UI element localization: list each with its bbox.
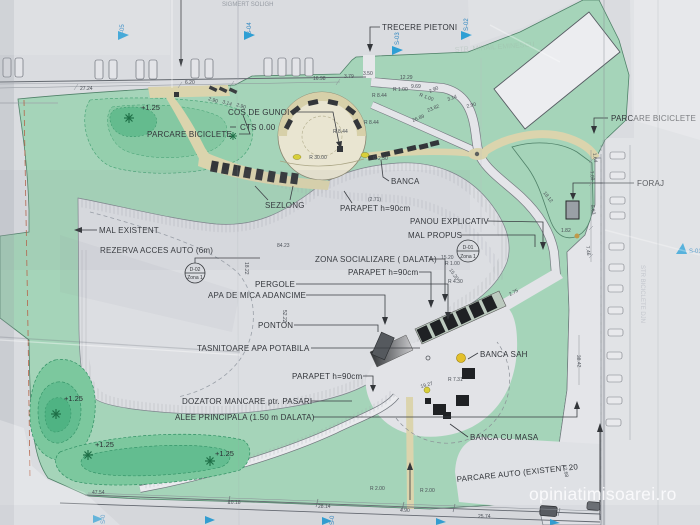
svg-text:12.29: 12.29 bbox=[400, 75, 413, 81]
svg-text:S-03: S-03 bbox=[395, 32, 401, 45]
svg-text:7.46: 7.46 bbox=[584, 246, 591, 257]
svg-text:9.69: 9.69 bbox=[411, 84, 421, 90]
svg-text:6.20: 6.20 bbox=[185, 80, 195, 86]
svg-text:R 8.44: R 8.44 bbox=[333, 129, 348, 135]
svg-text:R 8.44: R 8.44 bbox=[372, 93, 387, 99]
svg-text:R 2.00: R 2.00 bbox=[370, 486, 385, 492]
svg-text:BANCA SAH: BANCA SAH bbox=[480, 350, 528, 359]
svg-text:CTS 0.00: CTS 0.00 bbox=[240, 123, 276, 132]
svg-text:opiniatimisoarei.ro: opiniatimisoarei.ro bbox=[529, 484, 677, 504]
svg-text:ALEE PRINCIPALA (1.50 m DALATA: ALEE PRINCIPALA (1.50 m DALATA) bbox=[175, 413, 315, 422]
svg-text:R 1.00: R 1.00 bbox=[393, 87, 408, 93]
svg-text:DOZATOR MANCARE ptr. PASARI: DOZATOR MANCARE ptr. PASARI bbox=[182, 397, 312, 406]
svg-text:47.54: 47.54 bbox=[92, 490, 105, 496]
svg-text:38.42: 38.42 bbox=[575, 355, 582, 368]
svg-text:SIGMERT SOLIGH: SIGMERT SOLIGH bbox=[222, 2, 273, 8]
svg-text:PARCARE BICICLETE: PARCARE BICICLETE bbox=[147, 130, 232, 139]
svg-text:R 30.00: R 30.00 bbox=[309, 155, 327, 161]
svg-text:1.64: 1.64 bbox=[591, 153, 598, 164]
svg-text:TASNITOARE APA POTABILA: TASNITOARE APA POTABILA bbox=[197, 344, 310, 353]
svg-text:R 7.31: R 7.31 bbox=[448, 377, 463, 383]
svg-text:R 8.44: R 8.44 bbox=[364, 120, 379, 126]
svg-text:+1.25: +1.25 bbox=[141, 103, 160, 112]
svg-text:1.82: 1.82 bbox=[561, 228, 571, 234]
svg-text:TRECERE PIETONI: TRECERE PIETONI bbox=[382, 23, 457, 32]
svg-text:3.50: 3.50 bbox=[363, 71, 373, 77]
svg-text:R 2.00: R 2.00 bbox=[420, 488, 435, 494]
svg-text:+1.25: +1.25 bbox=[95, 440, 114, 449]
svg-text:PERGOLE: PERGOLE bbox=[255, 280, 295, 289]
svg-text:8.63: 8.63 bbox=[589, 205, 596, 216]
svg-text:3.79: 3.79 bbox=[344, 74, 354, 80]
svg-text:52.22: 52.22 bbox=[281, 310, 287, 323]
svg-text:16.98: 16.98 bbox=[313, 76, 326, 82]
svg-text:BANCA CU MASA: BANCA CU MASA bbox=[470, 433, 539, 442]
svg-text:R 2.30: R 2.30 bbox=[373, 156, 388, 162]
svg-text:PARAPET h=90cm: PARAPET h=90cm bbox=[292, 372, 362, 381]
svg-text:+1.25: +1.25 bbox=[215, 449, 234, 458]
svg-text:+1.25: +1.25 bbox=[64, 394, 83, 403]
svg-text:27.24: 27.24 bbox=[80, 86, 93, 92]
svg-text:PONTON: PONTON bbox=[258, 321, 293, 330]
svg-text:7.09: 7.09 bbox=[588, 171, 595, 182]
